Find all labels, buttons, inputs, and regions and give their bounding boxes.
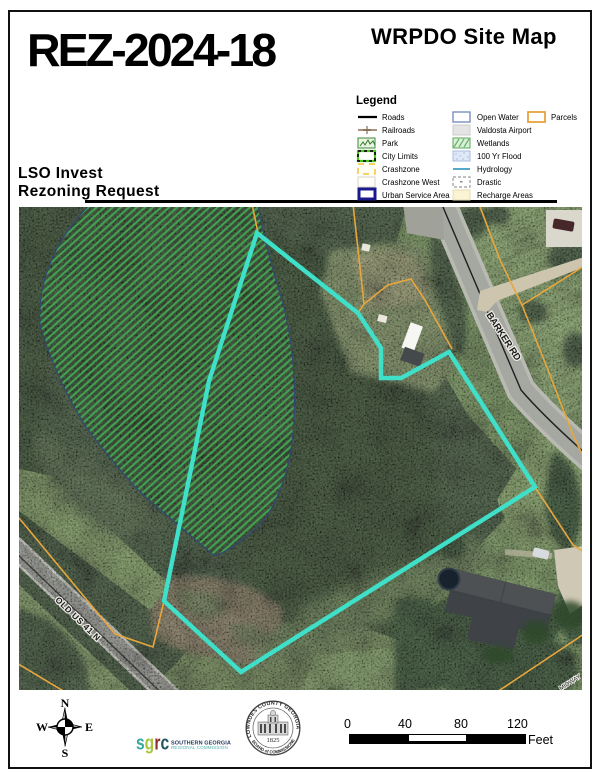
svg-text:Hydrology: Hydrology (477, 165, 512, 174)
svg-text:N: N (61, 696, 70, 710)
svg-text:Park: Park (382, 139, 398, 148)
svg-text:1825: 1825 (267, 737, 280, 744)
svg-text:Roads: Roads (382, 113, 405, 122)
svg-text:r: r (154, 732, 160, 754)
svg-text:Parcels: Parcels (551, 113, 577, 122)
svg-text:g: g (145, 732, 155, 754)
svg-text:s: s (136, 732, 145, 754)
svg-text:E: E (85, 720, 93, 734)
svg-text:S: S (62, 746, 69, 760)
svg-text:Recharge Areas: Recharge Areas (477, 191, 533, 200)
svg-text:Crashzone West: Crashzone West (382, 178, 440, 187)
svg-text:Wetlands: Wetlands (477, 139, 509, 148)
svg-text:Urban Service Area: Urban Service Area (382, 191, 450, 200)
svg-text:c: c (161, 732, 170, 754)
svg-text:100 Yr Flood: 100 Yr Flood (477, 152, 522, 161)
svg-text:Railroads: Railroads (382, 126, 415, 135)
svg-text:W: W (36, 720, 48, 734)
svg-text:Legend: Legend (356, 95, 397, 107)
svg-text:REGIONAL COMMISSION: REGIONAL COMMISSION (171, 745, 228, 750)
svg-text:Valdosta Airport: Valdosta Airport (477, 126, 532, 135)
svg-text:Crashzone: Crashzone (382, 165, 420, 174)
svg-text:Drastic: Drastic (477, 178, 501, 187)
svg-text:City Limits: City Limits (382, 152, 418, 161)
svg-text:Open Water: Open Water (477, 113, 519, 122)
